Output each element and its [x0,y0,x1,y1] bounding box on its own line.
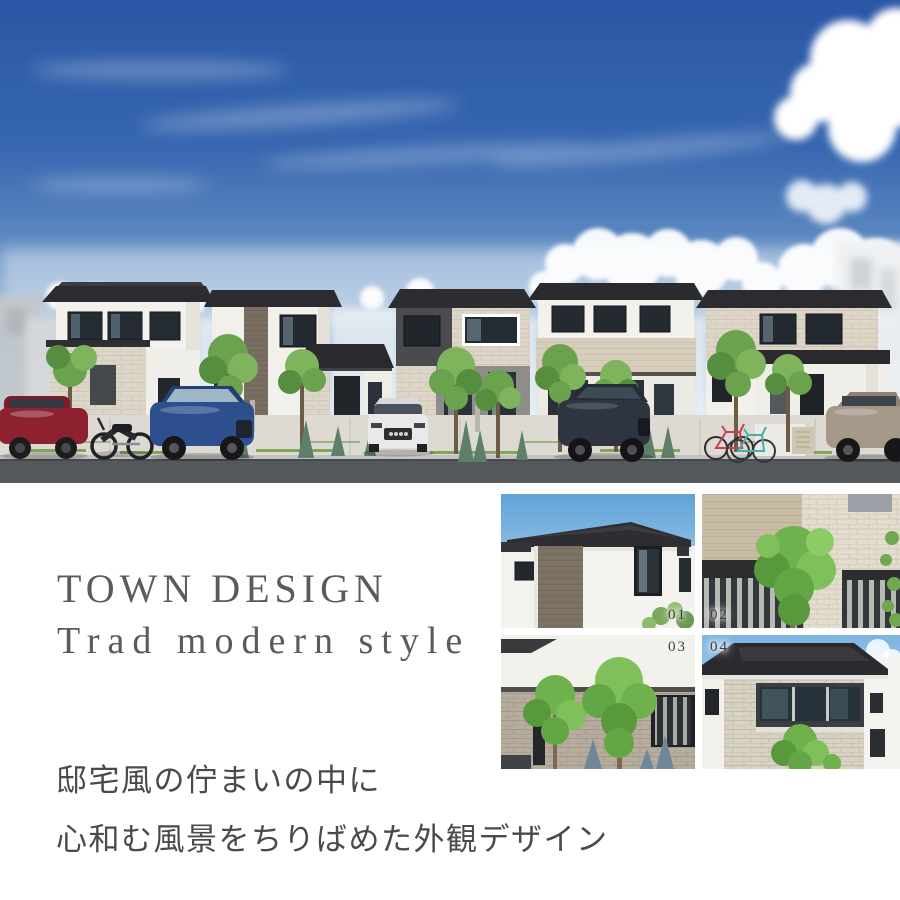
road-edge [0,459,900,461]
gallery-photo-03: 03 [501,635,695,769]
detail-render-02 [702,494,900,628]
photo-label-01: 01 [668,607,687,624]
promo-page: TOWN DESIGN Trad modern style 邸宅風の佇まいの中に… [0,0,900,900]
description-line-1: 邸宅風の佇まいの中に [56,763,381,798]
page-title: TOWN DESIGN [57,563,470,615]
detail-render-04 [702,635,900,769]
photo-label-03: 03 [668,639,687,656]
page-subtitle: Trad modern style [57,615,470,667]
headline-block: TOWN DESIGN Trad modern style [57,563,470,667]
gallery-photo-01: 01 [501,494,695,628]
photo-label-02: 02 [710,607,729,624]
streetscape-render [0,0,900,483]
detail-render-03 [501,635,695,769]
detail-render-01 [501,494,695,628]
photo-label-04: 04 [710,639,729,656]
gallery-photo-04: 04 [702,635,900,769]
gallery-photo-02: 02 [702,494,900,628]
main-exterior-photo [0,0,900,483]
description-line-2: 心和む風景をちりばめた外観デザイン [56,822,609,857]
